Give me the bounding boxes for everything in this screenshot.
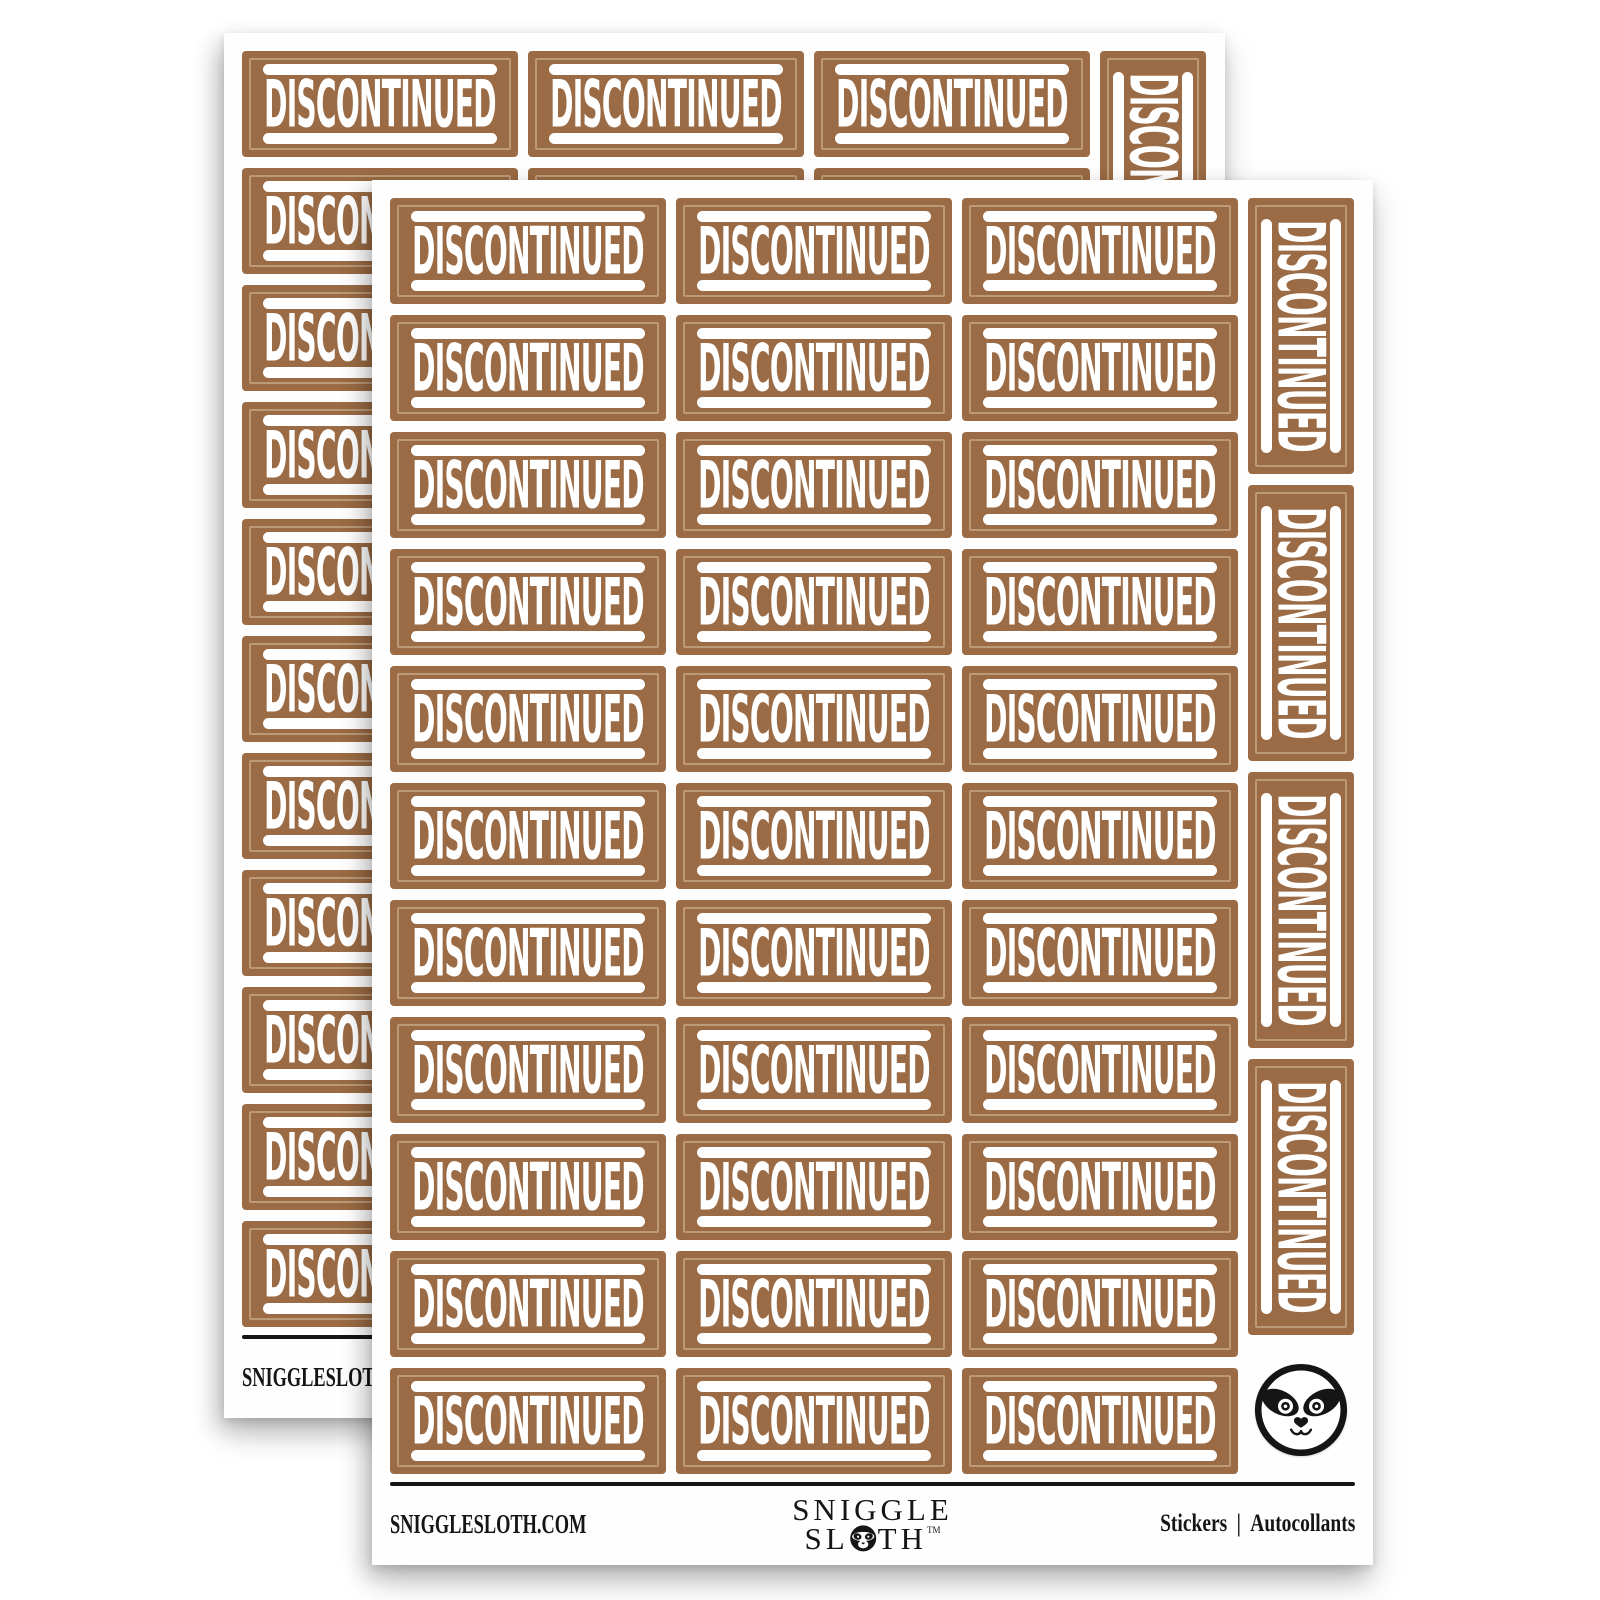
sticker-bottom-bar [411,1333,645,1344]
discontinued-sticker: DISCONTINUED [676,900,952,1006]
discontinued-sticker: DISCONTINUED [962,783,1238,889]
discontinued-sticker: DISCONTINUED [390,1368,666,1474]
vertical-sticker-slots: DISCONTINUED DISCONTINUED DISCONTINUED D… [1248,198,1354,1335]
discontinued-sticker: DISCONTINUED [676,1251,952,1357]
autocollants-label: Autocollants [1250,1510,1355,1538]
language-labels: Stickers | Autocollants [1160,1510,1355,1538]
sticker-bottom-bar [411,631,645,642]
sticker-bottom-bar [1261,793,1272,1027]
discontinued-sticker: DISCONTINUED [962,900,1238,1006]
sticker-bottom-bar [697,631,931,642]
discontinued-sticker: DISCONTINUED [1248,485,1354,761]
discontinued-sticker: DISCONTINUED [676,315,952,421]
stickers-label: Stickers [1160,1510,1227,1538]
discontinued-sticker: DISCONTINUED [390,549,666,655]
sticker-bottom-bar [411,1450,645,1461]
sticker-bottom-bar [983,982,1217,993]
discontinued-sticker: DISCONTINUED [962,1134,1238,1240]
discontinued-sticker: DISCONTINUED [390,1251,666,1357]
sticker-bottom-bar [697,1099,931,1110]
discontinued-sticker: DISCONTINUED [1248,1059,1354,1335]
brand-line2: SL TH TM [792,1524,953,1553]
discontinued-sticker: DISCONTINUED [242,51,518,157]
sticker-bottom-bar [983,748,1217,759]
vertical-sticker-slot: DISCONTINUED [1248,1059,1354,1335]
discontinued-sticker: DISCONTINUED [676,666,952,772]
discontinued-sticker: DISCONTINUED [390,1134,666,1240]
discontinued-sticker: DISCONTINUED [962,1368,1238,1474]
sticker-bottom-bar [411,982,645,993]
discontinued-sticker: DISCONTINUED [962,315,1238,421]
vertical-sticker-slot: DISCONTINUED [1248,198,1354,474]
product-photo: DISCONTINUED DISCONTINUED DISCONTINUED D… [0,0,1600,1600]
sticker-sheet-front: DISCONTINUED DISCONTINUED DISCONTINUED D… [372,180,1373,1565]
sticker-bottom-bar [411,1216,645,1227]
sticker-bottom-bar [983,631,1217,642]
sticker-bottom-bar [697,1333,931,1344]
sticker-bottom-bar [983,1450,1217,1461]
trademark-symbol: TM [927,1526,941,1534]
sticker-bottom-bar [697,865,931,876]
discontinued-sticker: DISCONTINUED [676,1017,952,1123]
sticker-bottom-bar [697,1216,931,1227]
footer-divider-line [390,1482,1355,1486]
brand-logo: SNIGGLE SL TH TM [792,1495,953,1553]
discontinued-sticker: DISCONTINUED [390,900,666,1006]
sloth-face-logo-icon [850,1525,877,1552]
discontinued-sticker: DISCONTINUED [962,666,1238,772]
vertical-sticker-slot: DISCONTINUED [1248,772,1354,1048]
footer-row: SNIGGLESLOTH.COM SNIGGLE SL TH [390,1493,1355,1555]
brand-line2-start: SL [804,1524,848,1553]
discontinued-sticker: DISCONTINUED [390,432,666,538]
sticker-bottom-bar [263,133,497,144]
sloth-face-icon [1254,1363,1348,1457]
sticker-bottom-bar [411,1099,645,1110]
sticker-grid: DISCONTINUED DISCONTINUED DISCONTINUED D… [390,198,1238,1474]
sticker-bottom-bar [1261,1080,1272,1314]
sticker-bottom-bar [983,1099,1217,1110]
discontinued-sticker: DISCONTINUED [676,432,952,538]
discontinued-sticker: DISCONTINUED [962,1017,1238,1123]
discontinued-sticker: DISCONTINUED [962,1251,1238,1357]
discontinued-sticker: DISCONTINUED [962,549,1238,655]
discontinued-sticker: DISCONTINUED [390,198,666,304]
sticker-bottom-bar [697,514,931,525]
discontinued-sticker: DISCONTINUED [390,315,666,421]
sticker-bottom-bar [983,514,1217,525]
sticker-bottom-bar [1261,219,1272,453]
sticker-bottom-bar [697,982,931,993]
sticker-bottom-bar [411,280,645,291]
discontinued-sticker: DISCONTINUED [528,51,804,157]
sticker-bottom-bar [697,748,931,759]
sticker-bottom-bar [983,1333,1217,1344]
sticker-bottom-bar [411,865,645,876]
discontinued-sticker: DISCONTINUED [390,783,666,889]
discontinued-sticker: DISCONTINUED [814,51,1090,157]
sticker-bottom-bar [983,1216,1217,1227]
website-text: SNIGGLESLOTH.COM [390,1509,586,1540]
discontinued-sticker: DISCONTINUED [390,666,666,772]
sticker-bottom-bar [549,133,783,144]
discontinued-sticker: DISCONTINUED [1248,198,1354,474]
discontinued-sticker: DISCONTINUED [676,1368,952,1474]
sticker-bottom-bar [835,133,1069,144]
sticker-bottom-bar [697,280,931,291]
sticker-bottom-bar [983,280,1217,291]
vertical-sticker-slot: DISCONTINUED [1248,485,1354,761]
sticker-bottom-bar [411,748,645,759]
discontinued-sticker: DISCONTINUED [390,1017,666,1123]
sloth-badge-wrap [1248,1346,1354,1474]
discontinued-sticker: DISCONTINUED [962,198,1238,304]
sticker-bottom-bar [983,865,1217,876]
sheet-footer: SNIGGLESLOTH.COM SNIGGLE SL TH [390,1482,1355,1562]
label-separator: | [1236,1510,1240,1538]
sticker-bottom-bar [983,397,1217,408]
vertical-sticker-column: DISCONTINUED DISCONTINUED DISCONTINUED D… [1248,198,1354,1474]
brand-line2-end: TH [878,1524,927,1553]
discontinued-sticker: DISCONTINUED [676,549,952,655]
sticker-bottom-bar [411,514,645,525]
discontinued-sticker: DISCONTINUED [676,1134,952,1240]
discontinued-sticker: DISCONTINUED [676,198,952,304]
discontinued-sticker: DISCONTINUED [676,783,952,889]
discontinued-sticker: DISCONTINUED [962,432,1238,538]
brand-line1: SNIGGLE [792,1495,953,1524]
sticker-bottom-bar [697,397,931,408]
sticker-bottom-bar [411,397,645,408]
sticker-bottom-bar [1261,506,1272,740]
discontinued-sticker: DISCONTINUED [1248,772,1354,1048]
sticker-bottom-bar [697,1450,931,1461]
